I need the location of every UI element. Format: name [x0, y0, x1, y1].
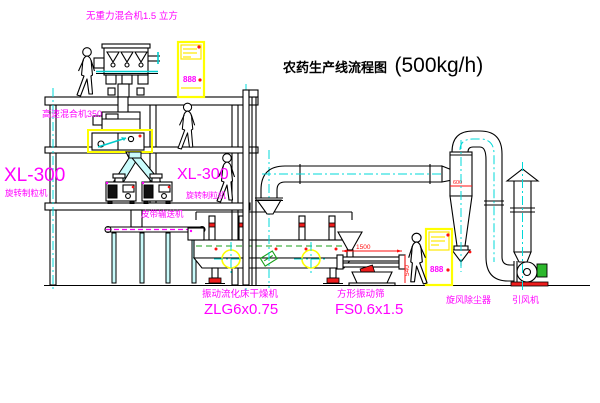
- vibrating-screen: 1500 540: [337, 232, 411, 286]
- exhaust-duct: [255, 164, 452, 214]
- person-ground: [409, 233, 427, 284]
- screen-model-label: FS0.6x1.5: [335, 301, 403, 318]
- gravity-free-mixer: [94, 44, 160, 97]
- gravity-mixer-label: 无重力混合机1.5 立方: [86, 10, 178, 22]
- indicator-led: [446, 233, 449, 236]
- granulator-right: [142, 174, 172, 204]
- belt-conveyor: [105, 210, 205, 283]
- dryer-model-label: ZLG6x0.75: [204, 301, 278, 318]
- title-text: 农药生产线流程图: [282, 60, 387, 75]
- top-floor-slab: [45, 97, 258, 105]
- control-cabinet-1: 888: [178, 42, 204, 97]
- granulator-right-name: 旋转制粒机: [186, 190, 226, 200]
- person-mid-floor: [178, 103, 195, 149]
- cyclone-separator: 600: [450, 140, 472, 272]
- induced-draft-fan: [511, 261, 548, 286]
- cad-flow-diagram: 888: [0, 0, 600, 403]
- screen-length-dim: 1500: [356, 244, 371, 251]
- control-cabinet-2: 888: [426, 229, 452, 285]
- granulator-left-model: XL-300: [4, 165, 65, 186]
- high-speed-mixer-label: 高速混合机350: [42, 108, 102, 119]
- screen-name-label: 方形振动筛: [337, 288, 385, 300]
- diagram-title: 农药生产线流程图 (500kg/h): [282, 54, 483, 77]
- title-capacity: (500kg/h): [394, 54, 483, 77]
- granulator-right-model: XL-300: [177, 166, 229, 183]
- indicator-led: [197, 45, 200, 48]
- cabinet1-display: 888: [183, 75, 197, 84]
- belt-conveyor-label: 皮带输送机: [141, 209, 184, 219]
- cabinet2-display: 888: [430, 265, 444, 274]
- fan-base: [511, 282, 548, 286]
- dryer-feed-inlet: [188, 228, 204, 240]
- dryer-name-label: 振动流化床干燥机: [202, 288, 279, 300]
- spring-mounts: [209, 216, 335, 240]
- person-top-floor: [77, 48, 95, 96]
- granulator-left: [106, 174, 136, 204]
- fan-motor: [537, 264, 547, 277]
- granulator-left-name: 旋转制粒机: [5, 188, 48, 198]
- indicator-led: [446, 268, 449, 271]
- cyclone-label: 旋风除尘器: [446, 294, 491, 305]
- diagram-canvas: 888: [0, 0, 600, 403]
- indicator-led: [198, 78, 201, 81]
- screen-height-dim: 540: [404, 265, 411, 276]
- fan-label: 引风机: [512, 294, 539, 305]
